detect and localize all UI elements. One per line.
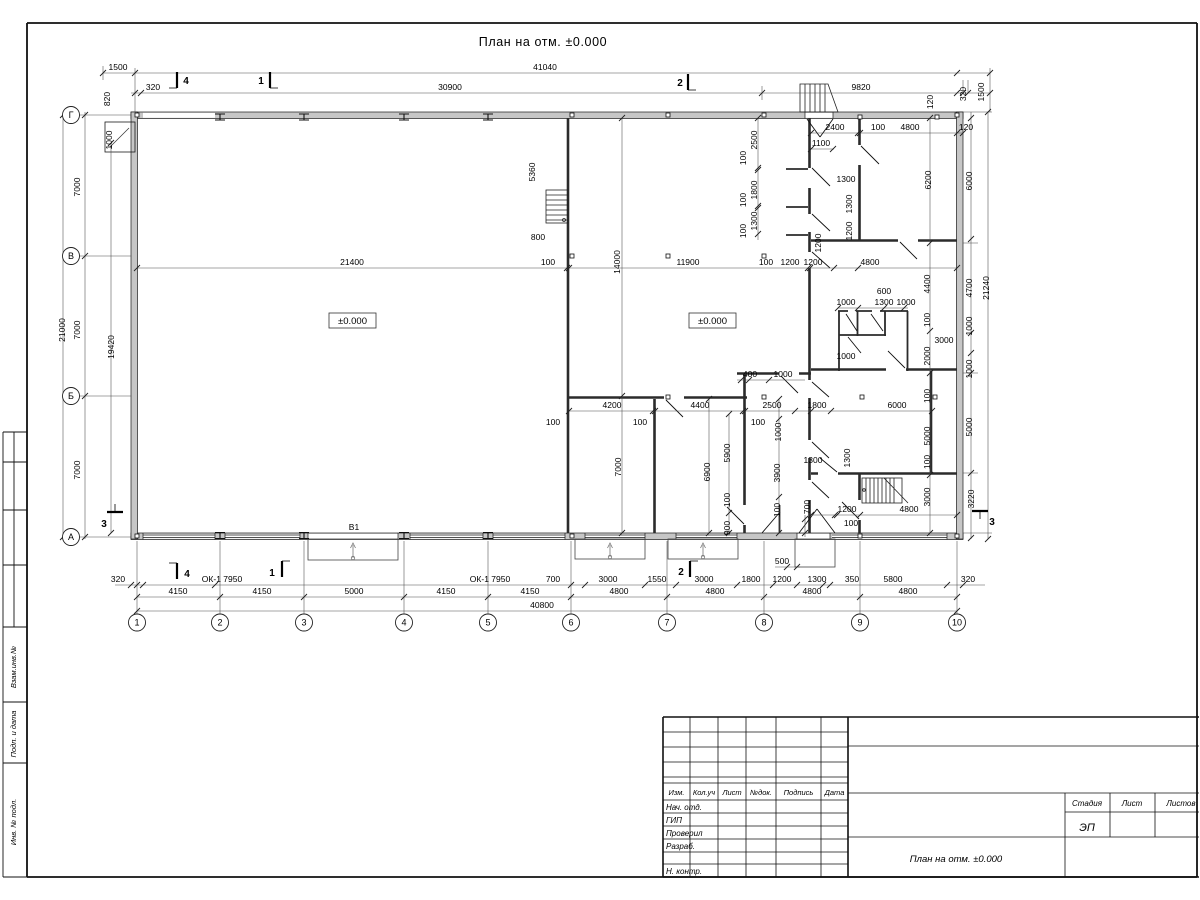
dim-label: 4700	[964, 278, 974, 297]
grid-bubble-col-label: 7	[664, 618, 669, 628]
dim-label: 1300	[804, 455, 823, 465]
grid-bubble-col-label: 2	[217, 618, 222, 628]
wall-openings	[143, 112, 947, 540]
grid-bubble-col-label: 8	[761, 618, 766, 628]
dim-line-path	[63, 66, 992, 614]
dim-label: 4800	[706, 586, 725, 596]
dim-label: 820	[102, 92, 112, 106]
dim-label: 2000	[922, 346, 932, 365]
dim-label: 1000	[837, 297, 856, 307]
tb-stage-value: ЭП	[1079, 822, 1095, 834]
stair-entrance-top	[800, 84, 838, 112]
dim-label: 2500	[763, 400, 782, 410]
dim-label: 1800	[749, 180, 759, 199]
tb-drawing-title: План на отм. ±0.000	[910, 854, 1003, 865]
dim-label: 11900	[676, 257, 699, 267]
dim-label: 1200	[813, 233, 823, 252]
dim-label: 7000	[613, 457, 623, 476]
dim-label: 1200	[781, 257, 800, 267]
tb-role-proveril: Проверил	[666, 829, 703, 838]
dim-label: 320	[958, 87, 968, 101]
dim-label: 4800	[900, 504, 919, 514]
dim-label: 5360	[527, 162, 537, 181]
dim-label: 1000	[774, 369, 793, 379]
dim-label: 19420	[106, 335, 116, 359]
dim-label: 400	[743, 369, 757, 379]
section-2-bottom: 2	[678, 567, 684, 578]
grid-bubble-col-label: 1	[134, 618, 139, 628]
title-block	[663, 717, 1199, 877]
dim-label: 100	[541, 257, 555, 267]
dim-label: 1000	[104, 130, 114, 149]
window-label-1: ОК-1 7950	[202, 574, 243, 584]
tb-role-gip: ГИП	[666, 816, 682, 825]
dim-label: 1000	[837, 351, 856, 361]
dim-label: 5000	[964, 417, 974, 436]
dim-label: 3220	[966, 489, 976, 508]
level-right: ±0.000	[698, 316, 727, 327]
dim-label: 1800	[808, 400, 827, 410]
dim-label: 500	[775, 556, 789, 566]
floor-plan-svg: Взам.инв.№ Подп. и дата Инв. № подл. Пла…	[0, 0, 1200, 900]
dim-label: 5800	[884, 574, 903, 584]
dim-label: 1000	[773, 422, 783, 441]
dim-label: 900	[722, 521, 732, 535]
dim-label: 7000	[72, 320, 82, 339]
dim-label: 6200	[923, 170, 933, 189]
section-flags	[107, 72, 988, 579]
level-left: ±0.000	[338, 316, 367, 327]
stair-symbols	[546, 84, 908, 503]
stamp-podp: Подп. и дата	[9, 711, 18, 758]
dim-label: 4800	[899, 586, 918, 596]
dim-label: 120	[925, 95, 935, 109]
tb-ndok: №док.	[750, 788, 772, 797]
dimension-labels: 1500410403203090098208201000120320150024…	[57, 62, 991, 610]
dim-label: 21240	[981, 276, 991, 300]
grid-bubble-col-label: 10	[952, 618, 962, 628]
dim-label: 2400	[826, 122, 845, 132]
dim-label: 5000	[345, 586, 364, 596]
level-marks: ±0.000 ±0.000	[329, 313, 736, 328]
dim-label: 3000	[922, 487, 932, 506]
dim-label: 4150	[253, 586, 272, 596]
tb-role-nkontr: Н. контр.	[666, 867, 702, 876]
tb-koluch: Кол.уч	[693, 788, 715, 797]
dim-label: 600	[877, 286, 891, 296]
dim-label: 100	[738, 193, 748, 207]
dim-label: 1550	[648, 574, 667, 584]
dim-label: 100	[844, 518, 858, 528]
dim-label: 41040	[533, 62, 557, 72]
stair-bottom-right	[862, 478, 908, 503]
dim-label: 1300	[808, 574, 827, 584]
dim-label: 1300	[749, 211, 759, 230]
section-1-bottom: 1	[269, 568, 275, 579]
dim-label: 4200	[603, 400, 622, 410]
dim-label: 1200	[804, 257, 823, 267]
window-label-2: ОК-1 7950	[470, 574, 511, 584]
grid-bubble-col-label: 6	[568, 618, 573, 628]
dim-label: 1200	[838, 504, 857, 514]
frame-stamp-labels: Взам.инв.№ Подп. и дата Инв. № подл.	[9, 646, 18, 845]
tb-stage-header: Стадия	[1072, 799, 1103, 808]
dim-label: 100	[722, 493, 732, 507]
section-3-right: 3	[989, 517, 995, 528]
section-4-top: 4	[183, 76, 189, 87]
grid-bubble-col-label: 5	[485, 618, 490, 628]
dim-label: 100	[772, 503, 782, 517]
dim-label: 21000	[57, 318, 67, 342]
dim-label: 40800	[530, 600, 554, 610]
dim-label: 6000	[888, 400, 907, 410]
drawing-sheet: Взам.инв.№ Подп. и дата Инв. № подл. Пла…	[0, 0, 1200, 900]
dim-label: 100	[871, 122, 885, 132]
grid-bubble-col-label: 4	[401, 618, 406, 628]
tb-list: Лист	[721, 788, 741, 797]
dim-label: 100	[546, 417, 560, 427]
dim-label: 3000	[935, 335, 954, 345]
dim-label: 1300	[844, 194, 854, 213]
grid-bubble-row-label: В	[68, 251, 74, 261]
dim-label: 120	[959, 122, 973, 132]
dim-label: 7000	[72, 177, 82, 196]
dim-label: 30900	[438, 82, 462, 92]
dim-label: 1500	[109, 62, 128, 72]
grid-bubble-col-label: 9	[857, 618, 862, 628]
dim-label: 4150	[437, 586, 456, 596]
dim-label: 100	[922, 313, 932, 327]
dim-label: 100	[922, 455, 932, 469]
dimension-ticks	[60, 70, 993, 614]
dim-label: 1000	[897, 297, 916, 307]
dim-label: 1500	[976, 82, 986, 101]
dim-label: 700	[546, 574, 560, 584]
dim-label: 4400	[922, 274, 932, 293]
section-2-top: 2	[677, 78, 683, 89]
section-1-top: 1	[258, 76, 264, 87]
dim-label: 21400	[340, 257, 364, 267]
dim-label: 1200	[773, 574, 792, 584]
dim-label: 1100	[812, 138, 831, 148]
dim-label: 100	[738, 151, 748, 165]
grid-bubble-row-label: А	[68, 532, 74, 542]
dim-label: 4800	[861, 257, 880, 267]
dim-label: 5000	[922, 426, 932, 445]
dim-label: 3900	[772, 463, 782, 482]
grid-bubble-col-label: 3	[301, 618, 306, 628]
dim-label: 100	[759, 257, 773, 267]
dim-label: 320	[111, 574, 125, 584]
page-title: План на отм. ±0.000	[479, 35, 607, 49]
dim-label: 1300	[875, 297, 894, 307]
grid-bubble-row-label: Г	[69, 110, 74, 120]
dim-label: 100	[633, 417, 647, 427]
dim-label: 4150	[169, 586, 188, 596]
tb-podpis: Подпись	[784, 788, 814, 797]
dim-label: 6000	[964, 171, 974, 190]
dim-label: 350	[845, 574, 859, 584]
dim-label: 4400	[691, 400, 710, 410]
tb-data: Дата	[824, 788, 845, 797]
dim-tick-path	[60, 70, 993, 614]
dim-label: 1300	[837, 174, 856, 184]
section-4-bottom: 4	[184, 569, 190, 580]
dim-label: 9820	[852, 82, 871, 92]
dim-label: 4800	[610, 586, 629, 596]
tb-role-nachotd: Нач. отд.	[666, 803, 702, 812]
dim-label: 14000	[612, 250, 622, 274]
dim-label: 100	[922, 389, 932, 403]
stamp-vzam: Взам.инв.№	[9, 646, 18, 688]
section-numbers: 4 1 2 4 1 2 3 3	[101, 76, 995, 580]
section-3-left: 3	[101, 519, 107, 530]
dim-label: 1800	[742, 574, 761, 584]
dim-label: 7000	[72, 460, 82, 479]
dim-label: 3000	[599, 574, 618, 584]
dim-label: 4800	[901, 122, 920, 132]
dim-label: 4150	[521, 586, 540, 596]
dim-label: 2500	[749, 130, 759, 149]
dim-label: 5900	[722, 443, 732, 462]
dim-label: 1200	[844, 221, 854, 240]
title-block-texts: Изм. Кол.уч Лист №док. Подпись Дата Нач.…	[666, 788, 1196, 876]
dimension-lines	[63, 66, 992, 614]
column-symbols	[135, 113, 959, 539]
dim-label: 800	[531, 232, 545, 242]
tb-role-razrab: Разраб.	[666, 842, 695, 851]
dim-label: 3000	[695, 574, 714, 584]
dim-label: 100	[751, 417, 765, 427]
dim-label: 700	[802, 500, 812, 514]
porches	[308, 539, 835, 567]
stamp-inv: Инв. № подл.	[9, 799, 18, 846]
dim-label: 4800	[803, 586, 822, 596]
dim-label: 1000	[964, 359, 974, 378]
gate-label: В1	[349, 522, 360, 532]
interior-walls-main	[568, 118, 957, 533]
tb-sheet-header: Лист	[1121, 799, 1143, 808]
stair-mid	[546, 190, 568, 223]
dim-label: 6900	[702, 462, 712, 481]
grid-bubble-row-label: Б	[68, 391, 74, 401]
dim-label: 1300	[842, 448, 852, 467]
tb-izm: Изм.	[669, 788, 685, 797]
sheet-frame	[3, 23, 1197, 877]
dim-label: 320	[961, 574, 975, 584]
dim-label: 1000	[964, 316, 974, 335]
dim-label: 320	[146, 82, 160, 92]
tb-sheets-header: Листов	[1165, 799, 1195, 808]
dim-label: 100	[738, 224, 748, 238]
